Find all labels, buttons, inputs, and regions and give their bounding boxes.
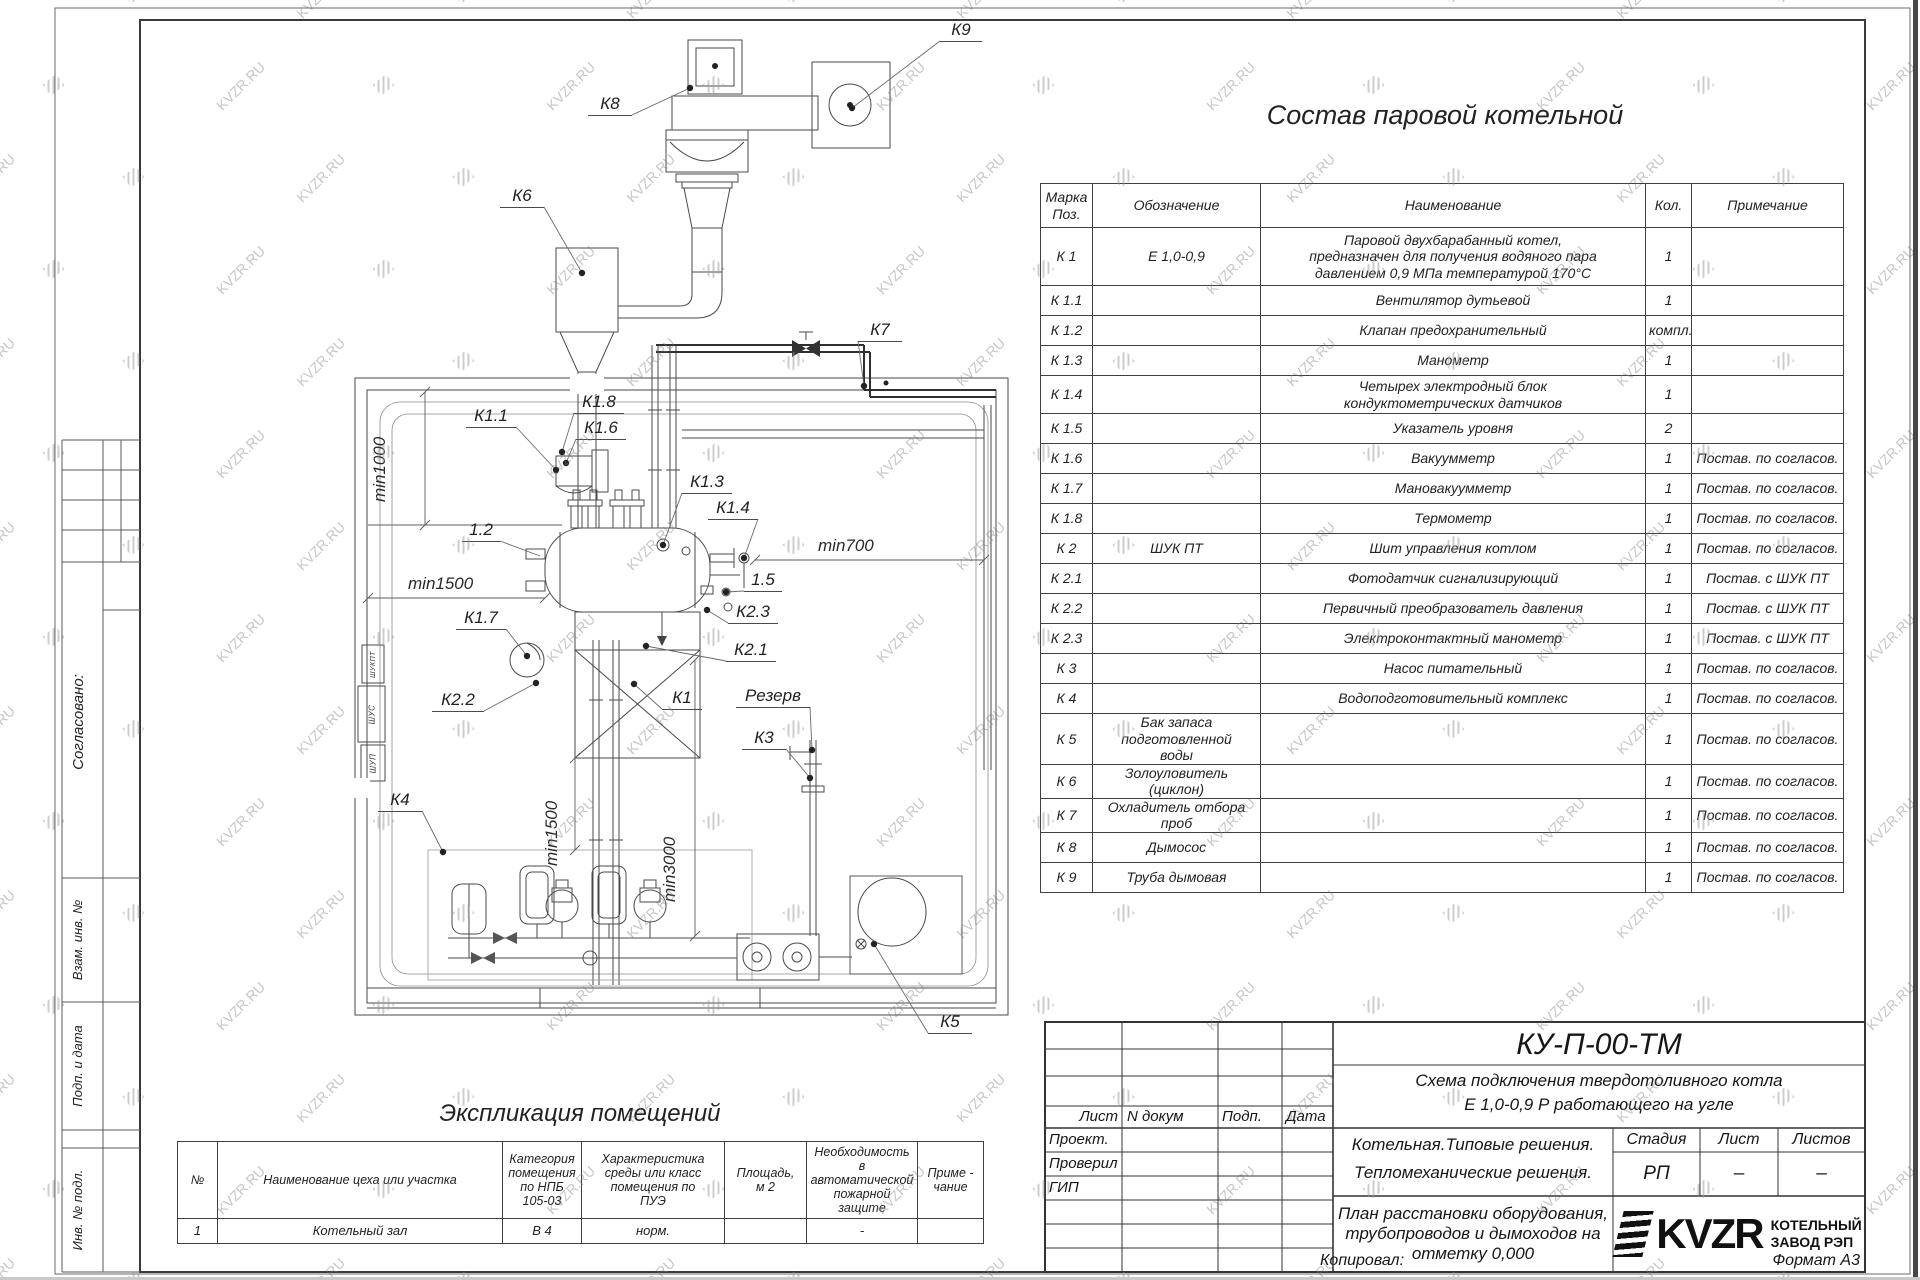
table-cell: Вентилятор дутьевой xyxy=(1261,286,1646,316)
table-cell: 1 xyxy=(1646,798,1692,832)
doc-subtitle-2: Е 1,0-0,9 Р работающего на угле xyxy=(1340,1092,1858,1118)
table-cell: Труба дымовая xyxy=(1093,862,1261,892)
table-cell: Первичный преобразователь давления xyxy=(1261,594,1646,624)
table-cell: К 1.1 xyxy=(1041,286,1093,316)
table-cell: Термометр xyxy=(1261,504,1646,534)
wall-panel-ШУКПТ: ШУКПТ xyxy=(362,645,384,683)
table-cell: Постав. по согласов. xyxy=(1692,764,1844,798)
table-cell xyxy=(1692,376,1844,414)
table-row: К 1.3Манометр1 xyxy=(1041,346,1844,376)
plan-label-К1: К1 xyxy=(662,688,702,710)
plan-label-К3: К3 xyxy=(742,728,786,750)
margin-podp: Подп. и дата xyxy=(70,1004,85,1128)
stage-value: РП xyxy=(1613,1152,1700,1196)
column-header: Необходимость в автоматической пожарной … xyxy=(807,1142,918,1219)
table-cell: 1 xyxy=(1646,764,1692,798)
format-label: Формат А3 xyxy=(1750,1252,1860,1270)
table-cell: 1 xyxy=(178,1219,218,1244)
table-cell: 1 xyxy=(1646,564,1692,594)
plan-label-К2.2: К2.2 xyxy=(432,690,484,712)
table-cell: 1 xyxy=(1646,504,1692,534)
table-cell: К 1.5 xyxy=(1041,414,1093,444)
table-cell: Четырех электродный блок кондуктометриче… xyxy=(1261,376,1646,414)
role-checked: Проверил xyxy=(1049,1155,1121,1172)
sheets-value: – xyxy=(1778,1152,1865,1196)
table-cell xyxy=(1093,474,1261,504)
table-cell: Постав. с ШУК ПТ xyxy=(1692,564,1844,594)
wall-panel-ШУП: ШУП xyxy=(361,745,385,781)
table-cell xyxy=(1261,714,1646,765)
plan-label-1.5: 1.5 xyxy=(744,570,782,592)
table-cell: К 1 xyxy=(1041,228,1093,286)
table-cell xyxy=(1692,346,1844,376)
column-header: Площадь, м 2 xyxy=(725,1142,807,1219)
table-cell: 1 xyxy=(1646,474,1692,504)
table-cell: ШУК ПТ xyxy=(1093,534,1261,564)
margin-vzam: Взам. инв. № xyxy=(70,880,85,1000)
table-cell: 1 xyxy=(1646,654,1692,684)
explication-title: Экспликация помещений xyxy=(330,1100,830,1128)
table-row: К 2.2Первичный преобразователь давления1… xyxy=(1041,594,1844,624)
table-row: К 8Дымосос1Постав. по согласов. xyxy=(1041,832,1844,862)
col-sheet-label: Лист xyxy=(1048,1108,1118,1125)
table-cell: Постав. по согласов. xyxy=(1692,444,1844,474)
table-cell: Фотодатчик сигнализирующий xyxy=(1261,564,1646,594)
stamp-table-title: Состав паровой котельной xyxy=(1120,100,1770,131)
table-cell: Постав. с ШУК ПТ xyxy=(1692,594,1844,624)
table-cell: Мановакуумметр xyxy=(1261,474,1646,504)
table-cell: Постав. с ШУК ПТ xyxy=(1692,624,1844,654)
doc-number: КУ-П-00-ТМ xyxy=(1340,1026,1858,1064)
table-cell xyxy=(1093,444,1261,474)
plan-label-Резерв: Резерв xyxy=(736,686,810,708)
dimension-label: min1500 xyxy=(542,801,562,866)
kvzr-logo-icon xyxy=(1613,1211,1654,1257)
table-cell: К 2.3 xyxy=(1041,624,1093,654)
table-cell: Постав. по согласов. xyxy=(1692,714,1844,765)
table-cell: 1 xyxy=(1646,624,1692,654)
table-cell: 1 xyxy=(1646,534,1692,564)
table-cell: Постав. по согласов. xyxy=(1692,832,1844,862)
table-cell: Насос питательный xyxy=(1261,654,1646,684)
table-cell: К 1.2 xyxy=(1041,316,1093,346)
table-cell: К 2 xyxy=(1041,534,1093,564)
plan-label-К7: К7 xyxy=(858,320,902,342)
table-cell xyxy=(1093,564,1261,594)
table-cell: К 1.4 xyxy=(1041,376,1093,414)
table-cell: Манометр xyxy=(1261,346,1646,376)
table-cell: К 1.7 xyxy=(1041,474,1093,504)
company-name-line1: КОТЕЛЬНЫЙ xyxy=(1771,1217,1862,1235)
table-cell: Постав. по согласов. xyxy=(1692,654,1844,684)
table-cell: 1 xyxy=(1646,832,1692,862)
plan-label-К4: К4 xyxy=(378,790,422,812)
table-cell: К 3 xyxy=(1041,654,1093,684)
table-cell: К 9 xyxy=(1041,862,1093,892)
table-cell xyxy=(1093,316,1261,346)
table-cell xyxy=(1261,862,1646,892)
table-row: К 1.5Указатель уровня2 xyxy=(1041,414,1844,444)
table-cell: В 4 xyxy=(503,1219,582,1244)
table-row: К 1.1Вентилятор дутьевой1 xyxy=(1041,286,1844,316)
table-cell: - xyxy=(807,1219,918,1244)
column-header: Характеристика среды или класс помещения… xyxy=(582,1142,725,1219)
column-header: Марка Поз. xyxy=(1041,184,1093,228)
table-row: К 6Золоуловитель (циклон)1Постав. по сог… xyxy=(1041,764,1844,798)
kvzr-logo-word: KVZR xyxy=(1656,1210,1762,1258)
table-cell: компл. xyxy=(1646,316,1692,346)
sheet-label: Лист xyxy=(1700,1128,1778,1152)
col-sign-label: Подп. xyxy=(1222,1108,1280,1125)
table-cell xyxy=(1093,346,1261,376)
table-cell xyxy=(1692,414,1844,444)
table-cell: 1 xyxy=(1646,286,1692,316)
table-cell xyxy=(1093,654,1261,684)
plan-label-К2.1: К2.1 xyxy=(726,640,776,662)
plan-label-К5: К5 xyxy=(928,1012,972,1034)
sheet-right-edge xyxy=(1913,0,1918,1280)
plan-label-К9: К9 xyxy=(940,20,982,42)
table-row: 1Котельный залВ 4норм.- xyxy=(178,1219,984,1244)
table-cell: Электроконтактный манометр xyxy=(1261,624,1646,654)
table-cell: 1 xyxy=(1646,444,1692,474)
table-cell: К 5 xyxy=(1041,714,1093,765)
wall-panel-ШУС: ШУС xyxy=(358,686,385,742)
table-row: К 4Водоподготовительный комплекс1Постав.… xyxy=(1041,684,1844,714)
table-row: К 1.4Четырех электродный блок кондуктоме… xyxy=(1041,376,1844,414)
table-cell xyxy=(1692,316,1844,346)
dimension-label: min1500 xyxy=(408,574,473,594)
table-cell: Постав. по согласов. xyxy=(1692,684,1844,714)
table-cell xyxy=(725,1219,807,1244)
table-cell: Шит управления котлом xyxy=(1261,534,1646,564)
company-name-line2: ЗАВОД РЭП xyxy=(1771,1234,1862,1252)
column-header: Кол. xyxy=(1646,184,1692,228)
table-cell: 1 xyxy=(1646,684,1692,714)
project-line-2: Тепломеханические решения. xyxy=(1336,1160,1610,1186)
table-cell xyxy=(918,1219,984,1244)
table-cell: К 8 xyxy=(1041,832,1093,862)
table-cell xyxy=(1093,286,1261,316)
sheet-value: – xyxy=(1700,1152,1778,1196)
table-cell: Водоподготовительный комплекс xyxy=(1261,684,1646,714)
table-cell: Паровой двухбарабанный котел, предназнач… xyxy=(1261,228,1646,286)
table-cell: К 7 xyxy=(1041,798,1093,832)
margin-agreed: Согласовано: xyxy=(70,572,87,872)
plan-label-К1.4: К1.4 xyxy=(708,498,758,520)
table-cell: К 1.8 xyxy=(1041,504,1093,534)
plan-label-1.2: 1.2 xyxy=(462,520,500,542)
table-cell: К 1.3 xyxy=(1041,346,1093,376)
table-row: К 1.6Вакуумметр1Постав. по согласов. xyxy=(1041,444,1844,474)
table-cell: Котельный зал xyxy=(218,1219,503,1244)
table-row: К 3Насос питательный1Постав. по согласов… xyxy=(1041,654,1844,684)
table-cell xyxy=(1692,228,1844,286)
dimension-label: min3000 xyxy=(660,837,680,902)
plan-label-К1.8: К1.8 xyxy=(574,392,624,414)
table-cell: норм. xyxy=(582,1219,725,1244)
plan-label-К1.7: К1.7 xyxy=(456,608,506,630)
table-cell: 1 xyxy=(1646,714,1692,765)
copied-label: Копировал: xyxy=(1320,1252,1480,1270)
column-header: Наименование цеха или участка xyxy=(218,1142,503,1219)
table-cell: Дымосос xyxy=(1093,832,1261,862)
drawing-sheet: Состав паровой котельной Марка Поз.Обозн… xyxy=(0,0,1920,1280)
role-gip: ГИП xyxy=(1049,1179,1121,1196)
table-row: К 2ШУК ПТШит управления котлом1Постав. п… xyxy=(1041,534,1844,564)
stamp-table: Марка Поз.ОбозначениеНаименованиеКол.При… xyxy=(1040,183,1844,893)
table-cell xyxy=(1261,764,1646,798)
table-cell: 1 xyxy=(1646,862,1692,892)
table-cell: Золоуловитель (циклон) xyxy=(1093,764,1261,798)
table-cell: Вакуумметр xyxy=(1261,444,1646,474)
table-cell xyxy=(1093,504,1261,534)
table-cell: Указатель уровня xyxy=(1261,414,1646,444)
plan-label-К2.3: К2.3 xyxy=(728,602,778,624)
table-cell xyxy=(1093,624,1261,654)
table-cell: Постав. по согласов. xyxy=(1692,504,1844,534)
column-header: Наименование xyxy=(1261,184,1646,228)
margin-inv: Инв. № подл. xyxy=(70,1150,85,1270)
table-cell: К 6 xyxy=(1041,764,1093,798)
table-cell xyxy=(1093,684,1261,714)
doc-subtitle-1: Схема подключения твердотоливного котла xyxy=(1340,1068,1858,1094)
table-cell xyxy=(1093,376,1261,414)
table-row: К 7Охладитель отбора проб1Постав. по сог… xyxy=(1041,798,1844,832)
table-cell: Охладитель отбора проб xyxy=(1093,798,1261,832)
column-header: Обозначение xyxy=(1093,184,1261,228)
table-cell: Постав. по согласов. xyxy=(1692,862,1844,892)
table-cell: 1 xyxy=(1646,228,1692,286)
column-header: Примечание xyxy=(1692,184,1844,228)
table-row: К 1.8Термометр1Постав. по согласов. xyxy=(1041,504,1844,534)
table-cell xyxy=(1093,414,1261,444)
table-row: К 9Труба дымовая1Постав. по согласов. xyxy=(1041,862,1844,892)
table-cell: Постав. по согласов. xyxy=(1692,534,1844,564)
table-cell: Е 1,0-0,9 xyxy=(1093,228,1261,286)
col-date-label: Дата xyxy=(1286,1108,1332,1125)
plan-label-К1.6: К1.6 xyxy=(576,418,626,440)
table-row: К 1Е 1,0-0,9Паровой двухбарабанный котел… xyxy=(1041,228,1844,286)
column-header: Категория помещения по НПБ 105-03 xyxy=(503,1142,582,1219)
table-cell: К 4 xyxy=(1041,684,1093,714)
table-cell xyxy=(1261,798,1646,832)
table-cell: Постав. по согласов. xyxy=(1692,474,1844,504)
company-name: КОТЕЛЬНЫЙ ЗАВОД РЭП xyxy=(1771,1217,1862,1252)
table-cell: 1 xyxy=(1646,376,1692,414)
col-doc-label: N докум xyxy=(1127,1108,1217,1125)
dimension-label: min1000 xyxy=(370,437,390,502)
sheets-label: Листов xyxy=(1778,1128,1865,1152)
table-row: К 1.2Клапан предохранительныйкомпл. xyxy=(1041,316,1844,346)
table-cell: К 2.1 xyxy=(1041,564,1093,594)
table-row: К 2.1Фотодатчик сигнализирующий1Постав. … xyxy=(1041,564,1844,594)
column-header: № xyxy=(178,1142,218,1219)
table-row: К 5Бак запаса подготовленной воды1Постав… xyxy=(1041,714,1844,765)
table-cell: 1 xyxy=(1646,594,1692,624)
table-cell: Бак запаса подготовленной воды xyxy=(1093,714,1261,765)
table-cell xyxy=(1261,832,1646,862)
table-cell: 2 xyxy=(1646,414,1692,444)
plan-label-К1.1: К1.1 xyxy=(466,406,516,428)
table-row: К 2.3Электроконтактный манометр1Постав. … xyxy=(1041,624,1844,654)
role-project: Проект. xyxy=(1049,1131,1121,1148)
table-cell: 1 xyxy=(1646,346,1692,376)
plan-label-К8: К8 xyxy=(588,94,632,116)
table-cell xyxy=(1093,594,1261,624)
column-header: Приме - чание xyxy=(918,1142,984,1219)
table-cell: К 2.2 xyxy=(1041,594,1093,624)
table-cell: Клапан предохранительный xyxy=(1261,316,1646,346)
table-row: К 1.7Мановакуумметр1Постав. по согласов. xyxy=(1041,474,1844,504)
project-line-1: Котельная.Типовые решения. xyxy=(1336,1132,1610,1158)
table-cell: К 1.6 xyxy=(1041,444,1093,474)
stage-label: Стадия xyxy=(1613,1128,1700,1152)
explication-table: №Наименование цеха или участкаКатегория … xyxy=(177,1141,984,1244)
plan-label-К6: К6 xyxy=(500,186,544,208)
dimension-label: min700 xyxy=(818,536,874,556)
table-cell xyxy=(1692,286,1844,316)
table-cell: Постав. по согласов. xyxy=(1692,798,1844,832)
plan-label-К1.3: К1.3 xyxy=(682,472,732,494)
